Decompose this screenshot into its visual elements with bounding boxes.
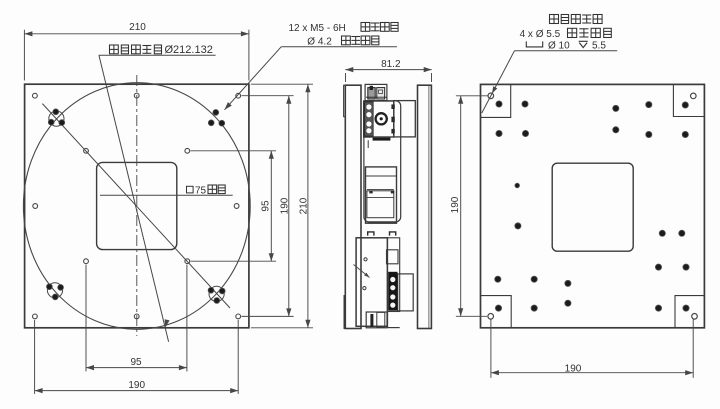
svg-text:Ø 10: Ø 10 [548, 41, 570, 52]
svg-text:4 x Ø 5.5: 4 x Ø 5.5 [520, 29, 561, 40]
svg-text:95: 95 [261, 200, 272, 212]
svg-text:190: 190 [565, 363, 582, 374]
svg-text:95: 95 [130, 357, 142, 368]
svg-text:190: 190 [128, 380, 145, 391]
svg-text:12 x M5 - 6H: 12 x M5 - 6H [289, 23, 346, 34]
svg-text:210: 210 [299, 197, 310, 214]
svg-text:Ø212.132: Ø212.132 [165, 44, 213, 56]
svg-text:Ø 4.2: Ø 4.2 [307, 36, 332, 47]
svg-text:210: 210 [129, 22, 146, 33]
svg-text:190: 190 [450, 196, 461, 213]
svg-text:5.5: 5.5 [592, 41, 606, 52]
svg-text:81.2: 81.2 [381, 59, 401, 70]
svg-text:190: 190 [280, 197, 291, 214]
